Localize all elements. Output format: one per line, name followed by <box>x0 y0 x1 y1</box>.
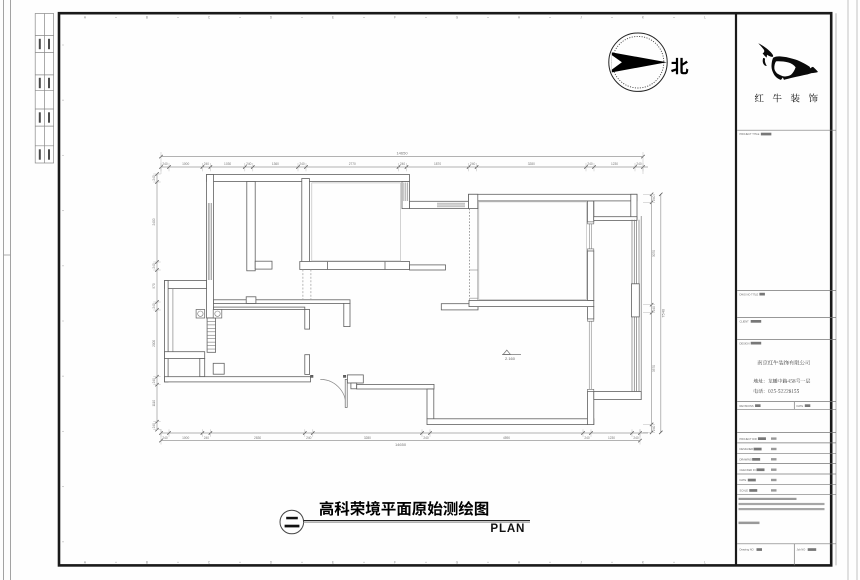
svg-text:240: 240 <box>633 436 639 440</box>
svg-text:L: L <box>704 560 706 564</box>
svg-text:240: 240 <box>152 378 156 384</box>
svg-text:240: 240 <box>584 436 590 440</box>
svg-text:PROJECT TITLE: PROJECT TITLE <box>740 132 760 136</box>
svg-text:DATE: DATE <box>797 404 804 408</box>
svg-text:CLIENT: CLIENT <box>740 320 750 324</box>
svg-text:240: 240 <box>306 436 312 440</box>
svg-text:3370: 3370 <box>652 365 656 372</box>
svg-text:240: 240 <box>204 162 210 166</box>
svg-text:240: 240 <box>636 162 642 166</box>
svg-text:3280: 3280 <box>528 162 535 166</box>
svg-text:240: 240 <box>152 423 156 429</box>
svg-text:2000: 2000 <box>152 340 156 347</box>
svg-text:1870: 1870 <box>434 162 441 166</box>
svg-text:1360: 1360 <box>272 162 279 166</box>
svg-text:1230: 1230 <box>611 162 618 166</box>
svg-text:14650: 14650 <box>396 151 408 156</box>
svg-text:SCALE: SCALE <box>740 489 749 493</box>
svg-text:3070: 3070 <box>652 250 656 257</box>
svg-text:240: 240 <box>299 162 305 166</box>
svg-text:DRAWING: DRAWING <box>740 458 752 462</box>
svg-text:2830: 2830 <box>254 436 261 440</box>
svg-text:240: 240 <box>152 175 156 181</box>
svg-text:4590: 4590 <box>503 436 510 440</box>
svg-text:240: 240 <box>152 263 156 269</box>
svg-text:F: F <box>394 16 396 20</box>
svg-text:240: 240 <box>246 162 252 166</box>
svg-text:2.160: 2.160 <box>505 356 516 361</box>
svg-text:DESIGN: DESIGN <box>740 341 750 345</box>
svg-text:7540: 7540 <box>660 308 665 318</box>
svg-text:L: L <box>704 16 706 20</box>
svg-text:1000: 1000 <box>182 436 189 440</box>
svg-text:1030: 1030 <box>224 162 231 166</box>
svg-text:240: 240 <box>400 162 406 166</box>
svg-text:DATE: DATE <box>740 478 747 482</box>
svg-text:PROJECT DIR: PROJECT DIR <box>740 437 757 441</box>
svg-text:Job NO: Job NO <box>797 548 806 552</box>
svg-text:DESIGNER: DESIGNER <box>740 447 754 451</box>
svg-text:1110: 1110 <box>152 400 156 407</box>
svg-text:2400: 2400 <box>152 218 156 225</box>
svg-text:240: 240 <box>652 195 656 201</box>
svg-text:B: B <box>146 16 148 20</box>
svg-text:PLAN: PLAN <box>490 522 525 535</box>
svg-text:REVISIONS: REVISIONS <box>740 404 754 408</box>
svg-text:240: 240 <box>423 436 429 440</box>
svg-text:240: 240 <box>652 306 656 312</box>
svg-text:970: 970 <box>152 283 156 289</box>
svg-text:1230: 1230 <box>608 436 615 440</box>
svg-text:240: 240 <box>587 162 593 166</box>
svg-text:Drawing NO: Drawing NO <box>740 548 754 552</box>
svg-text:B: B <box>146 560 148 564</box>
svg-text:E: E <box>332 16 334 20</box>
svg-text:240: 240 <box>162 436 168 440</box>
svg-text:CHECKED IN: CHECKED IN <box>740 468 756 472</box>
svg-text:240: 240 <box>470 162 476 166</box>
svg-text:DWG NO TITLE: DWG NO TITLE <box>740 292 759 296</box>
svg-text:240: 240 <box>204 436 210 440</box>
svg-text:1000: 1000 <box>182 162 189 166</box>
svg-text:E: E <box>332 560 334 564</box>
svg-text:14650: 14650 <box>395 442 407 447</box>
svg-text:240: 240 <box>162 162 168 166</box>
svg-text:3280: 3280 <box>364 436 371 440</box>
svg-text:240: 240 <box>152 303 156 309</box>
svg-text:240: 240 <box>652 426 656 432</box>
svg-text:F: F <box>394 560 396 564</box>
svg-text:2770: 2770 <box>349 162 356 166</box>
